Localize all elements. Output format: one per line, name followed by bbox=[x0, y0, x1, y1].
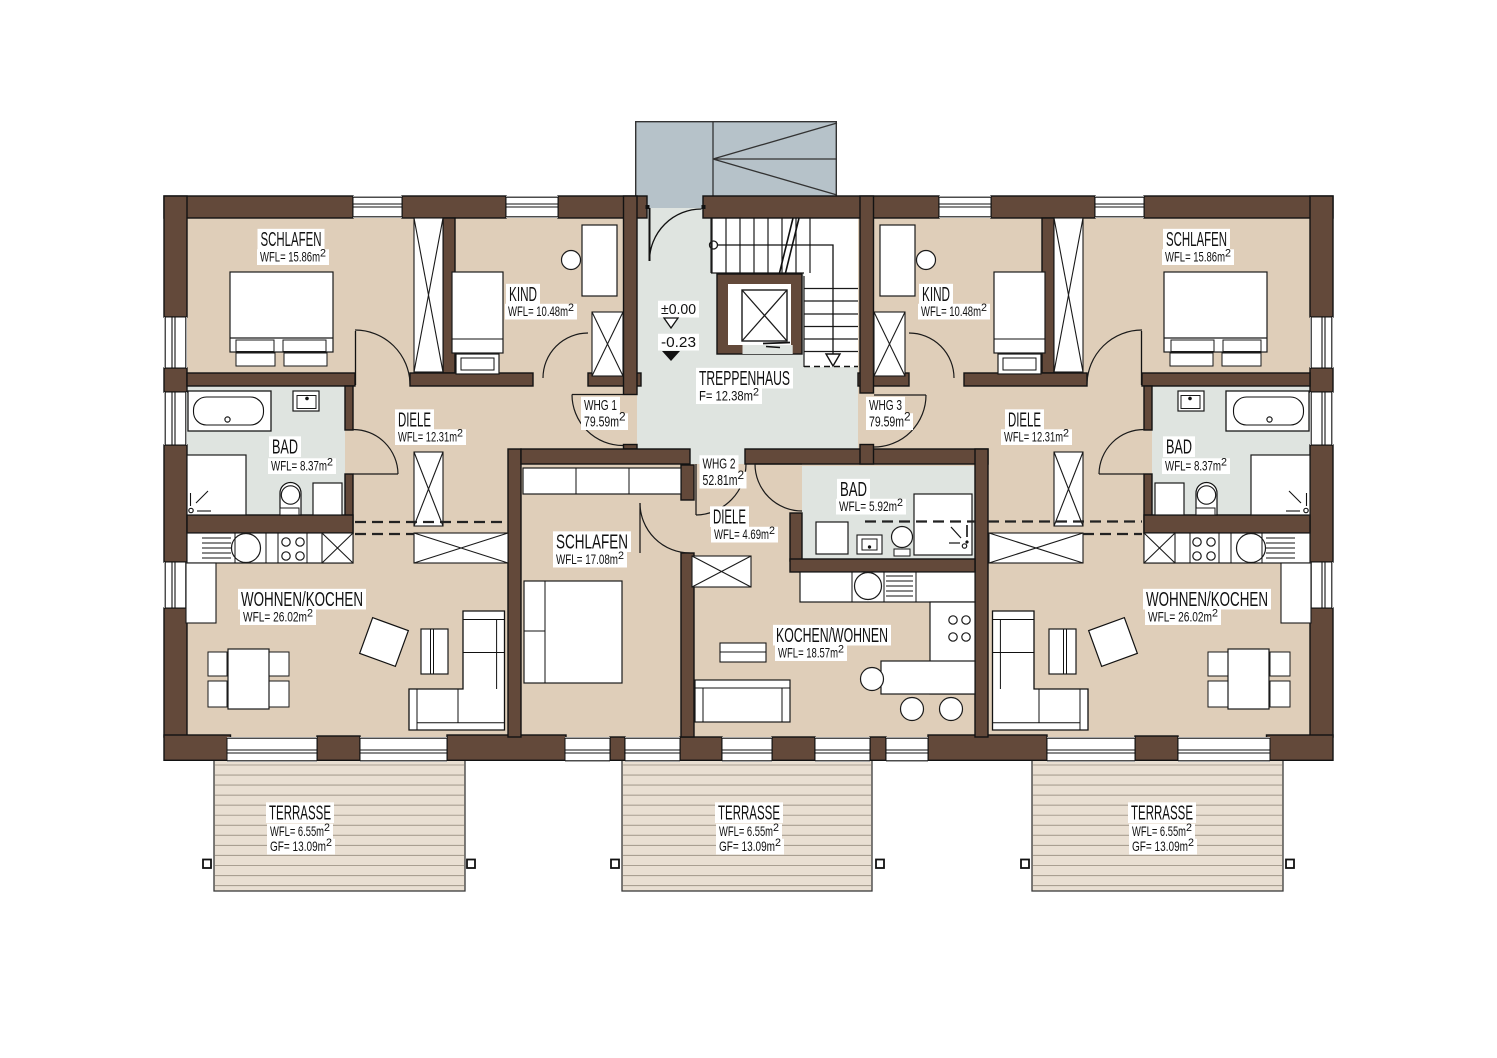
svg-text:2: 2 bbox=[618, 550, 624, 562]
svg-text:WFL= 6.55m: WFL= 6.55m bbox=[719, 824, 773, 839]
svg-text:2: 2 bbox=[568, 302, 574, 314]
svg-text:2: 2 bbox=[324, 822, 330, 834]
svg-text:2: 2 bbox=[775, 837, 781, 849]
svg-text:-0.23: -0.23 bbox=[661, 334, 696, 351]
svg-text:52.81m: 52.81m bbox=[703, 472, 738, 489]
svg-text:DIELE: DIELE bbox=[1008, 409, 1041, 432]
svg-text:WFL= 5.92m: WFL= 5.92m bbox=[839, 499, 897, 514]
svg-text:2: 2 bbox=[320, 247, 326, 259]
svg-text:2: 2 bbox=[753, 386, 759, 398]
svg-text:WFL= 10.48m: WFL= 10.48m bbox=[508, 304, 568, 319]
svg-text:2: 2 bbox=[1188, 837, 1194, 849]
svg-text:GF= 13.09m: GF= 13.09m bbox=[1132, 839, 1188, 854]
svg-text:2: 2 bbox=[307, 607, 313, 619]
svg-text:2: 2 bbox=[1225, 247, 1231, 259]
svg-text:DIELE: DIELE bbox=[398, 409, 431, 432]
svg-text:WHG 3: WHG 3 bbox=[869, 397, 902, 414]
svg-text:BAD: BAD bbox=[840, 478, 867, 501]
svg-text:2: 2 bbox=[1063, 427, 1069, 439]
svg-text:F= 12.38m: F= 12.38m bbox=[699, 389, 753, 404]
svg-text:2: 2 bbox=[981, 302, 987, 314]
svg-text:TERRASSE: TERRASSE bbox=[1131, 802, 1193, 825]
svg-text:SCHLAFEN: SCHLAFEN bbox=[1166, 228, 1227, 251]
svg-text:2: 2 bbox=[619, 410, 626, 424]
svg-text:2: 2 bbox=[326, 837, 332, 849]
svg-text:KOCHEN/WOHNEN: KOCHEN/WOHNEN bbox=[776, 624, 888, 647]
svg-text:WFL= 26.02m: WFL= 26.02m bbox=[1148, 610, 1212, 625]
svg-text:WFL= 4.69m: WFL= 4.69m bbox=[714, 527, 769, 542]
svg-text:KIND: KIND bbox=[509, 283, 537, 306]
svg-text:WFL= 6.55m: WFL= 6.55m bbox=[1132, 824, 1186, 839]
svg-text:WFL= 12.31m: WFL= 12.31m bbox=[398, 430, 457, 445]
svg-text:DIELE: DIELE bbox=[713, 506, 746, 529]
svg-text:TERRASSE: TERRASSE bbox=[269, 802, 331, 825]
svg-text:2: 2 bbox=[1186, 822, 1192, 834]
svg-text:KIND: KIND bbox=[922, 283, 950, 306]
svg-text:BAD: BAD bbox=[1166, 436, 1192, 459]
svg-text:WFL= 15.86m: WFL= 15.86m bbox=[260, 250, 320, 265]
svg-text:WHG 1: WHG 1 bbox=[584, 397, 617, 414]
svg-text:2: 2 bbox=[769, 525, 775, 537]
svg-text:2: 2 bbox=[904, 410, 911, 424]
svg-text:WFL= 26.02m: WFL= 26.02m bbox=[243, 610, 307, 625]
svg-text:GF= 13.09m: GF= 13.09m bbox=[270, 839, 326, 854]
svg-text:WFL= 6.55m: WFL= 6.55m bbox=[270, 824, 324, 839]
svg-text:WHG 2: WHG 2 bbox=[703, 456, 736, 473]
svg-text:2: 2 bbox=[838, 643, 844, 655]
svg-text:GF= 13.09m: GF= 13.09m bbox=[719, 839, 775, 854]
svg-text:WFL= 8.37m: WFL= 8.37m bbox=[1165, 459, 1221, 474]
svg-text:2: 2 bbox=[457, 427, 463, 439]
svg-text:±0.00: ±0.00 bbox=[661, 301, 696, 318]
svg-text:TERRASSE: TERRASSE bbox=[718, 802, 780, 825]
svg-text:2: 2 bbox=[738, 468, 745, 482]
svg-text:2: 2 bbox=[773, 822, 779, 834]
svg-text:2: 2 bbox=[897, 497, 903, 509]
svg-text:SCHLAFEN: SCHLAFEN bbox=[261, 228, 322, 251]
svg-text:WFL= 12.31m: WFL= 12.31m bbox=[1004, 430, 1063, 445]
svg-text:TREPPENHAUS: TREPPENHAUS bbox=[699, 367, 790, 390]
svg-text:WFL= 17.08m: WFL= 17.08m bbox=[556, 552, 618, 567]
svg-text:WFL= 10.48m: WFL= 10.48m bbox=[921, 304, 981, 319]
svg-text:2: 2 bbox=[1221, 456, 1227, 468]
svg-text:WFL= 15.86m: WFL= 15.86m bbox=[1165, 250, 1225, 265]
svg-text:79.59m: 79.59m bbox=[869, 414, 904, 431]
svg-text:79.59m: 79.59m bbox=[584, 414, 619, 431]
svg-text:WOHNEN/KOCHEN: WOHNEN/KOCHEN bbox=[241, 588, 363, 611]
svg-text:WFL= 8.37m: WFL= 8.37m bbox=[271, 459, 327, 474]
svg-text:2: 2 bbox=[327, 456, 333, 468]
svg-text:WOHNEN/KOCHEN: WOHNEN/KOCHEN bbox=[1146, 588, 1268, 611]
svg-text:WFL= 18.57m: WFL= 18.57m bbox=[778, 646, 838, 661]
svg-text:2: 2 bbox=[1212, 607, 1218, 619]
svg-text:BAD: BAD bbox=[272, 436, 298, 459]
